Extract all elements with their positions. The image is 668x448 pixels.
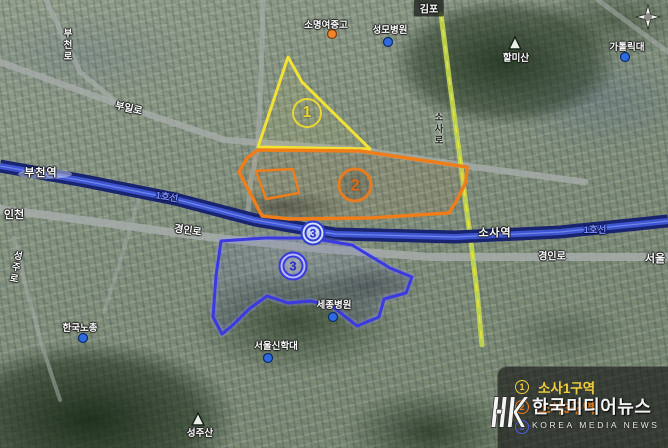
- mountain-icon-seongjusan: [192, 413, 204, 425]
- poi-dot-sejong: [329, 313, 338, 322]
- satellite-map: 부일로 부천로 소사로 경인로 경인로 성주로 김포 인천 서울 부천역 소사역…: [0, 0, 668, 448]
- line1-badge-east: 1호선: [584, 222, 607, 236]
- road-label-gyeongin-ro-east: 경인로: [538, 248, 566, 263]
- direction-label-gimpo: 김포: [414, 0, 444, 17]
- station-label-sosa: 소사역: [478, 224, 511, 240]
- poi-label-somyeong-school: 소명여중고: [304, 17, 348, 31]
- zone3-number-railway: 3: [310, 227, 317, 239]
- poi-label-catholic-univ: 가톨릭대: [610, 39, 645, 53]
- poi-label-sejong-hospital: 세종병원: [317, 297, 352, 311]
- poi-label-seongmo-hospital: 성모병원: [373, 22, 408, 36]
- zone1-marker: 1: [292, 98, 322, 128]
- poi-label-union-hall: 한국노총: [63, 320, 98, 334]
- zone2-marker: 2: [338, 168, 373, 203]
- watermark-title: 한국미디어뉴스: [532, 393, 660, 419]
- direction-label-incheon: 인천: [4, 206, 24, 222]
- road-label-bucheon-ro: 부천로: [59, 28, 73, 63]
- poi-dot-union: [79, 334, 88, 343]
- poi-dot-stu: [264, 354, 273, 363]
- zone3-number-area: 3: [289, 260, 296, 273]
- poi-dot-seongmo: [384, 38, 393, 47]
- poi-label-seoul-theological-univ: 서울신학대: [254, 338, 298, 352]
- direction-label-seoul: 서울: [645, 250, 665, 266]
- watermark: 한국미디어뉴스 KOREA MEDIA NEWS: [491, 393, 660, 431]
- station-label-bucheon: 부천역: [24, 164, 57, 180]
- zone1-number: 1: [303, 105, 312, 121]
- watermark-text-block: 한국미디어뉴스 KOREA MEDIA NEWS: [532, 393, 660, 430]
- road-label-sosa-ro: 소사로: [430, 112, 444, 147]
- mountain-icon-halmisan: [509, 37, 521, 49]
- watermark-subtitle: KOREA MEDIA NEWS: [532, 420, 660, 430]
- road-minor-southwest: [104, 195, 140, 312]
- hk-logo-icon: [491, 393, 529, 431]
- poi-dot-catholic: [621, 53, 630, 62]
- mountain-label-seongjusan: 성주산: [187, 425, 213, 439]
- mountain-label-halmisan: 할미산: [503, 50, 529, 64]
- compass-icon: [636, 5, 660, 29]
- legend-zone1-circle-icon: 1: [515, 380, 529, 394]
- zone2-number: 2: [350, 177, 359, 194]
- zone3-marker-railway: 3: [301, 221, 326, 246]
- zone3-marker-area: 3: [279, 252, 308, 281]
